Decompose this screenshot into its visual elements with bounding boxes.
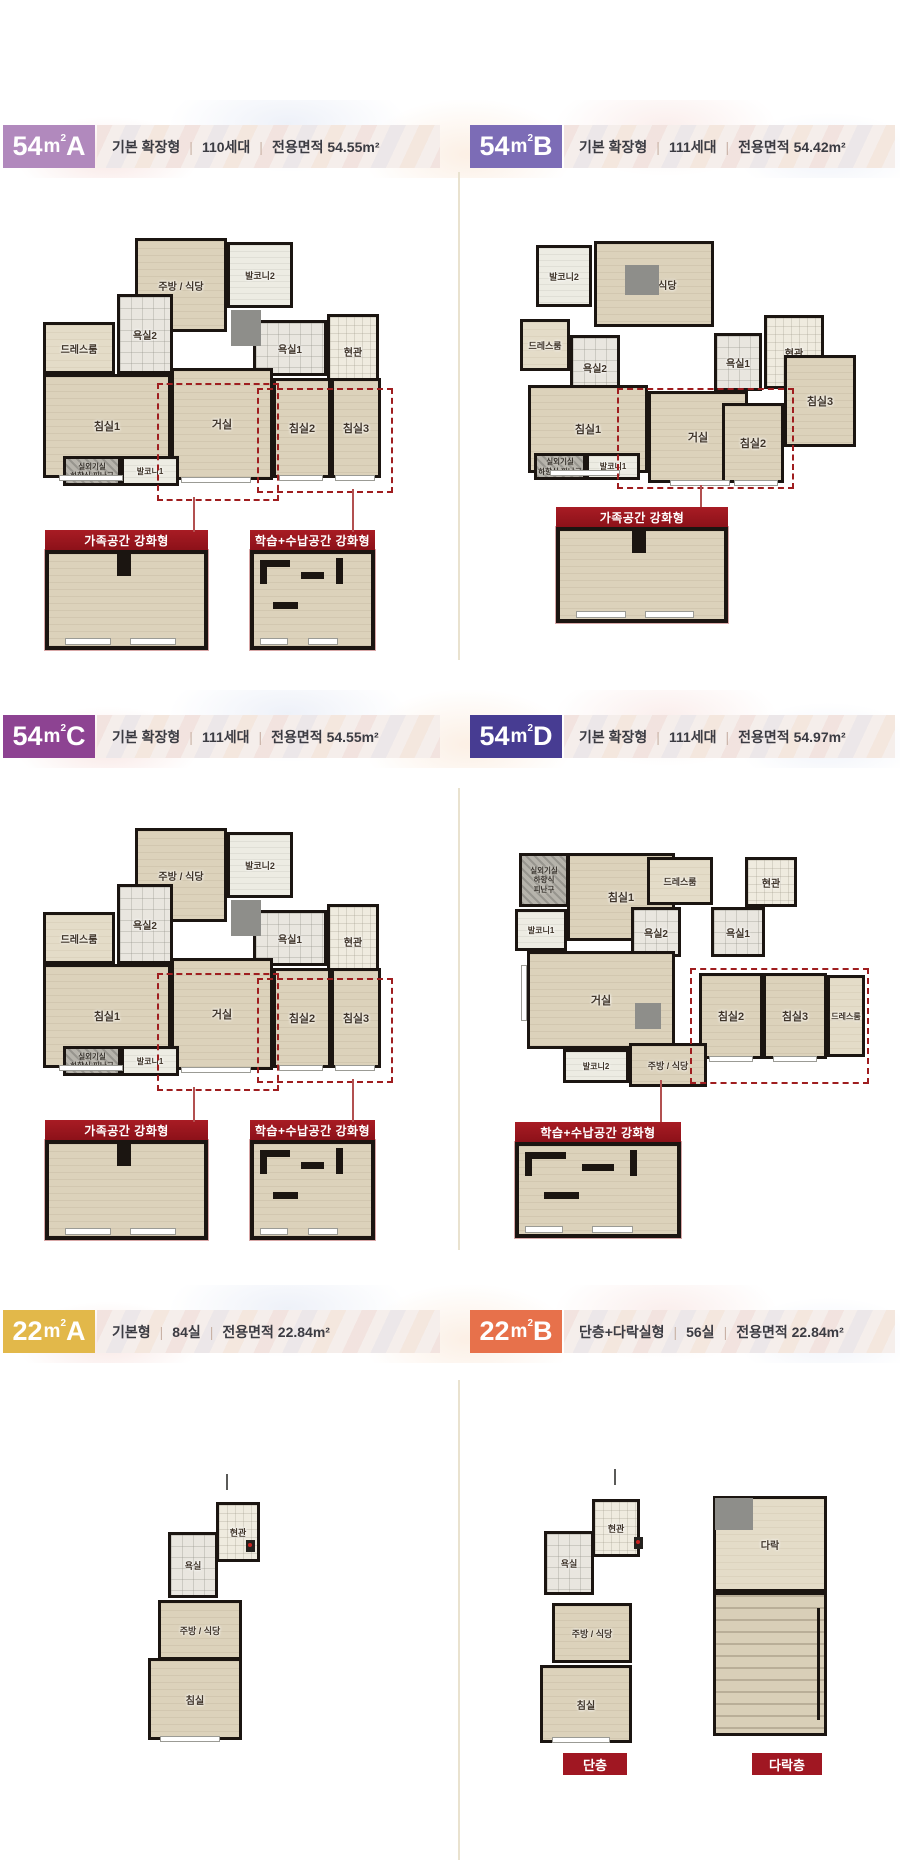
room-label: 침실 <box>186 1692 204 1707</box>
connector-line <box>193 497 195 532</box>
room: 침실3 <box>784 355 856 447</box>
badge-letter: B <box>533 133 553 160</box>
wall-block <box>630 1150 637 1176</box>
separator <box>259 729 263 745</box>
floor-plan: 다락 <box>705 1490 835 1742</box>
desc-area: 전용면적 54.55m² <box>271 727 379 747</box>
desc-type: 단층+다락실형 <box>579 1322 664 1342</box>
desc-type: 기본 확장형 <box>579 727 647 747</box>
window <box>160 1736 220 1742</box>
type-badge-54D: 54m2D <box>470 715 562 758</box>
subplan-title: 가족공간 강화형 <box>45 1120 208 1140</box>
desc-units: 84실 <box>172 1322 200 1342</box>
column-divider <box>458 172 460 660</box>
separator <box>160 1324 164 1340</box>
room: 거실 <box>527 951 675 1049</box>
wall-line <box>226 1474 228 1490</box>
room-label: 욕실2 <box>133 327 157 342</box>
room: 침실 <box>540 1665 632 1743</box>
room-label: 발코니1 <box>528 925 555 936</box>
room: 욕실2 <box>117 294 173 374</box>
separator <box>656 729 660 745</box>
desc-area: 전용면적 22.84m² <box>736 1322 844 1342</box>
room: 현관 <box>327 904 379 978</box>
type-desc-54D: 기본 확장형111세대전용면적 54.97m² <box>564 715 895 758</box>
room: 발코니2 <box>227 242 293 308</box>
room: 현관 <box>745 857 797 907</box>
badge-superscript: 2 <box>527 1318 533 1329</box>
room: 욕실 <box>544 1531 594 1595</box>
window <box>65 1228 112 1235</box>
room-label: 욕실1 <box>726 925 750 940</box>
separator <box>673 1324 677 1340</box>
room-label: 침실 <box>577 1697 595 1712</box>
window <box>260 638 288 645</box>
type-desc-54B: 기본 확장형111세대전용면적 54.42m² <box>564 125 895 168</box>
wall-block <box>336 558 343 584</box>
room: 현관 <box>327 314 379 388</box>
window <box>308 1228 338 1235</box>
desc-type: 기본 확장형 <box>579 137 647 157</box>
badge-superscript: 2 <box>527 133 533 144</box>
separator <box>210 1324 214 1340</box>
badge-letter: D <box>533 723 553 750</box>
badge-size: 54 <box>12 133 42 160</box>
window <box>65 638 112 645</box>
connector-line <box>352 489 354 532</box>
room-label: 현관 <box>344 934 362 949</box>
type-badge-22A: 22m2A <box>3 1310 95 1353</box>
subplan-body <box>556 527 728 623</box>
subplan-body <box>250 550 375 650</box>
subplan-body <box>45 550 208 650</box>
badge-letter: B <box>533 1318 553 1345</box>
wall-block <box>336 1148 343 1174</box>
window <box>576 611 625 618</box>
room-label: 침실1 <box>575 421 601 437</box>
room: 발코니2 <box>563 1049 629 1083</box>
window <box>525 1226 563 1233</box>
floor-plan: 현관욕실주방 / 식당침실 <box>530 1485 658 1747</box>
desc-area: 전용면적 22.84m² <box>222 1322 330 1342</box>
wall-block <box>117 554 131 576</box>
desc-type: 기본 확장형 <box>112 727 180 747</box>
room: 드레스룸 <box>520 319 570 371</box>
desc-area: 전용면적 54.42m² <box>738 137 846 157</box>
floor-badge: 단층 <box>563 1753 627 1775</box>
window <box>130 638 177 645</box>
badge-unit: m <box>44 727 61 746</box>
room-label: 욕실2 <box>644 925 668 940</box>
room: 발코니2 <box>227 832 293 898</box>
subplan-title: 가족공간 강화형 <box>556 507 728 527</box>
room: 주방 / 식당 <box>552 1603 632 1663</box>
badge-unit: m <box>511 1322 528 1341</box>
red-dashed-box <box>257 388 393 493</box>
type-desc-54A: 기본 확장형110세대전용면적 54.55m² <box>97 125 440 168</box>
room-label: 현관 <box>762 875 780 890</box>
badge-unit: m <box>44 1322 61 1341</box>
desc-type: 기본 확장형 <box>112 137 180 157</box>
desc-area: 전용면적 54.55m² <box>272 137 380 157</box>
badge-superscript: 2 <box>527 723 533 734</box>
connector-line <box>193 1087 195 1122</box>
electric-panel-icon <box>634 1537 643 1549</box>
room: 현관 <box>592 1499 640 1557</box>
room: 침실 <box>148 1658 242 1740</box>
room-label: 욕실2 <box>133 917 157 932</box>
room: 욕실1 <box>714 333 762 391</box>
type-desc-22B: 단층+다락실형56실전용면적 22.84m² <box>564 1310 895 1353</box>
subplan-title: 학습+수납공간 강화형 <box>250 530 375 550</box>
room-label: 주방 / 식당 <box>180 1624 221 1637</box>
red-dashed-box <box>617 388 794 489</box>
separator <box>656 139 660 155</box>
room-label: 욕실1 <box>278 341 302 356</box>
room: 실외기실하향식피난구 <box>519 853 569 907</box>
connector-line <box>352 1079 354 1122</box>
wall-block <box>301 1162 324 1169</box>
desc-units: 111세대 <box>669 727 717 747</box>
room: 현관 <box>216 1502 260 1562</box>
wall-block <box>544 1192 579 1199</box>
subplan-body <box>515 1142 681 1238</box>
badge-unit: m <box>44 137 61 156</box>
red-dashed-box <box>257 978 393 1083</box>
badge-superscript: 2 <box>60 1318 66 1329</box>
room: 발코니2 <box>536 245 592 307</box>
subplan-title: 학습+수납공간 강화형 <box>515 1122 681 1142</box>
room-label: 발코니2 <box>549 270 579 283</box>
badge-size: 54 <box>479 723 509 750</box>
room <box>713 1592 827 1736</box>
room: 드레스룸 <box>43 912 115 964</box>
badge-unit: m <box>511 137 528 156</box>
subplan-body <box>250 1140 375 1240</box>
room-label: 현관 <box>608 1522 625 1535</box>
badge-superscript: 2 <box>60 133 66 144</box>
window <box>521 965 527 1021</box>
desc-type: 기본형 <box>112 1322 151 1342</box>
window <box>552 1737 610 1743</box>
wall-block <box>817 1608 820 1720</box>
gray-block <box>715 1498 753 1530</box>
window <box>308 638 338 645</box>
badge-letter: C <box>66 723 86 750</box>
badge-size: 22 <box>479 1318 509 1345</box>
room: 욕실 <box>168 1532 218 1598</box>
badge-letter: A <box>66 133 86 160</box>
room-label: 침실3 <box>807 393 833 409</box>
wall-block <box>117 1144 131 1166</box>
wall-block <box>582 1164 614 1171</box>
connector-line <box>660 1080 662 1122</box>
room-label: 거실 <box>591 992 611 1008</box>
electric-panel-icon <box>246 1540 255 1552</box>
column-divider <box>458 1380 460 1860</box>
subplan-title: 학습+수납공간 강화형 <box>250 1120 375 1140</box>
room-label: 침실1 <box>94 1008 120 1024</box>
subplan-body <box>45 1140 208 1240</box>
separator <box>726 729 730 745</box>
room-label: 다락 <box>761 1537 779 1552</box>
window <box>130 1228 177 1235</box>
wall-block <box>273 602 299 609</box>
floor-badge: 다락층 <box>752 1753 822 1775</box>
type-desc-54C: 기본 확장형111세대전용면적 54.55m² <box>97 715 440 758</box>
room-label: 발코니2 <box>245 859 275 872</box>
room: 욕실1 <box>711 907 765 957</box>
wall-block <box>260 560 267 584</box>
room: 실외기실하향식 피난구 <box>63 1046 121 1076</box>
type-badge-22B: 22m2B <box>470 1310 562 1353</box>
room-label: 주방 / 식당 <box>648 1059 689 1072</box>
room: 실외기실하향식 피난구 <box>63 456 121 486</box>
wall-line <box>614 1469 616 1485</box>
room-label: 욕실1 <box>278 931 302 946</box>
wall-block <box>632 531 646 553</box>
room: 드레스룸 <box>647 857 713 905</box>
room-label: 주방 / 식당 <box>572 1627 613 1640</box>
desc-units: 111세대 <box>202 727 250 747</box>
type-desc-22A: 기본형84실전용면적 22.84m² <box>97 1310 440 1353</box>
room-label: 주방 / 식당 <box>158 278 203 293</box>
desc-units: 56실 <box>686 1322 714 1342</box>
room-label: 발코니2 <box>245 269 275 282</box>
separator <box>189 139 193 155</box>
room-label: 욕실 <box>561 1557 578 1570</box>
room-label: 침실1 <box>94 418 120 434</box>
room: 발코니1 <box>515 909 567 951</box>
window <box>550 470 620 476</box>
badge-letter: A <box>66 1318 86 1345</box>
red-dashed-box <box>690 968 869 1084</box>
room: 욕실2 <box>631 907 681 957</box>
badge-size: 54 <box>479 133 509 160</box>
wall-block <box>301 572 324 579</box>
badge-unit: m <box>511 727 528 746</box>
subplan-title: 가족공간 강화형 <box>45 530 208 550</box>
badge-size: 22 <box>12 1318 42 1345</box>
room-label: 침실1 <box>608 889 634 905</box>
room-label: 드레스룸 <box>61 931 98 946</box>
desc-area: 전용면적 54.97m² <box>738 727 846 747</box>
room-label: 현관 <box>230 1526 247 1539</box>
desc-units: 111세대 <box>669 137 717 157</box>
separator <box>189 729 193 745</box>
type-badge-54A: 54m2A <box>3 125 95 168</box>
room: 욕실2 <box>117 884 173 964</box>
room-label: 실외기실하향식피난구 <box>530 866 558 894</box>
separator <box>726 139 730 155</box>
type-badge-54B: 54m2B <box>470 125 562 168</box>
separator <box>724 1324 728 1340</box>
room-label: 드레스룸 <box>663 875 696 888</box>
room-label: 욕실1 <box>726 355 750 370</box>
connector-line <box>700 485 702 507</box>
window <box>260 1228 288 1235</box>
wall-block <box>273 1192 299 1199</box>
separator <box>259 139 263 155</box>
gray-block <box>635 1003 661 1029</box>
room-label: 드레스룸 <box>528 339 561 352</box>
window <box>59 1065 123 1071</box>
column-divider <box>458 788 460 1250</box>
room-label: 현관 <box>344 344 362 359</box>
room-label: 욕실 <box>185 1559 202 1572</box>
badge-size: 54 <box>12 723 42 750</box>
type-badge-54C: 54m2C <box>3 715 95 758</box>
wall-block <box>525 1152 532 1176</box>
room: 드레스룸 <box>43 322 115 374</box>
room-label: 발코니2 <box>583 1061 610 1072</box>
room-label: 주방 / 식당 <box>158 868 203 883</box>
floor-plan-brochure-page: 주방 / 식당발코니2드레스룸욕실2욕실1현관침실1거실침실2침실3발코니1실외… <box>0 0 900 1865</box>
badge-superscript: 2 <box>60 723 66 734</box>
room-label: 욕실2 <box>583 360 607 375</box>
window <box>592 1226 633 1233</box>
gray-block <box>231 900 261 936</box>
desc-units: 110세대 <box>202 137 250 157</box>
room-label: 드레스룸 <box>61 341 98 356</box>
gray-block <box>625 265 659 295</box>
room: 주방 / 식당 <box>158 1600 242 1660</box>
gray-block <box>231 310 261 346</box>
window <box>645 611 694 618</box>
floor-plan: 현관욕실주방 / 식당침실 <box>140 1490 260 1748</box>
wall-block <box>260 1150 267 1174</box>
window <box>59 475 123 481</box>
